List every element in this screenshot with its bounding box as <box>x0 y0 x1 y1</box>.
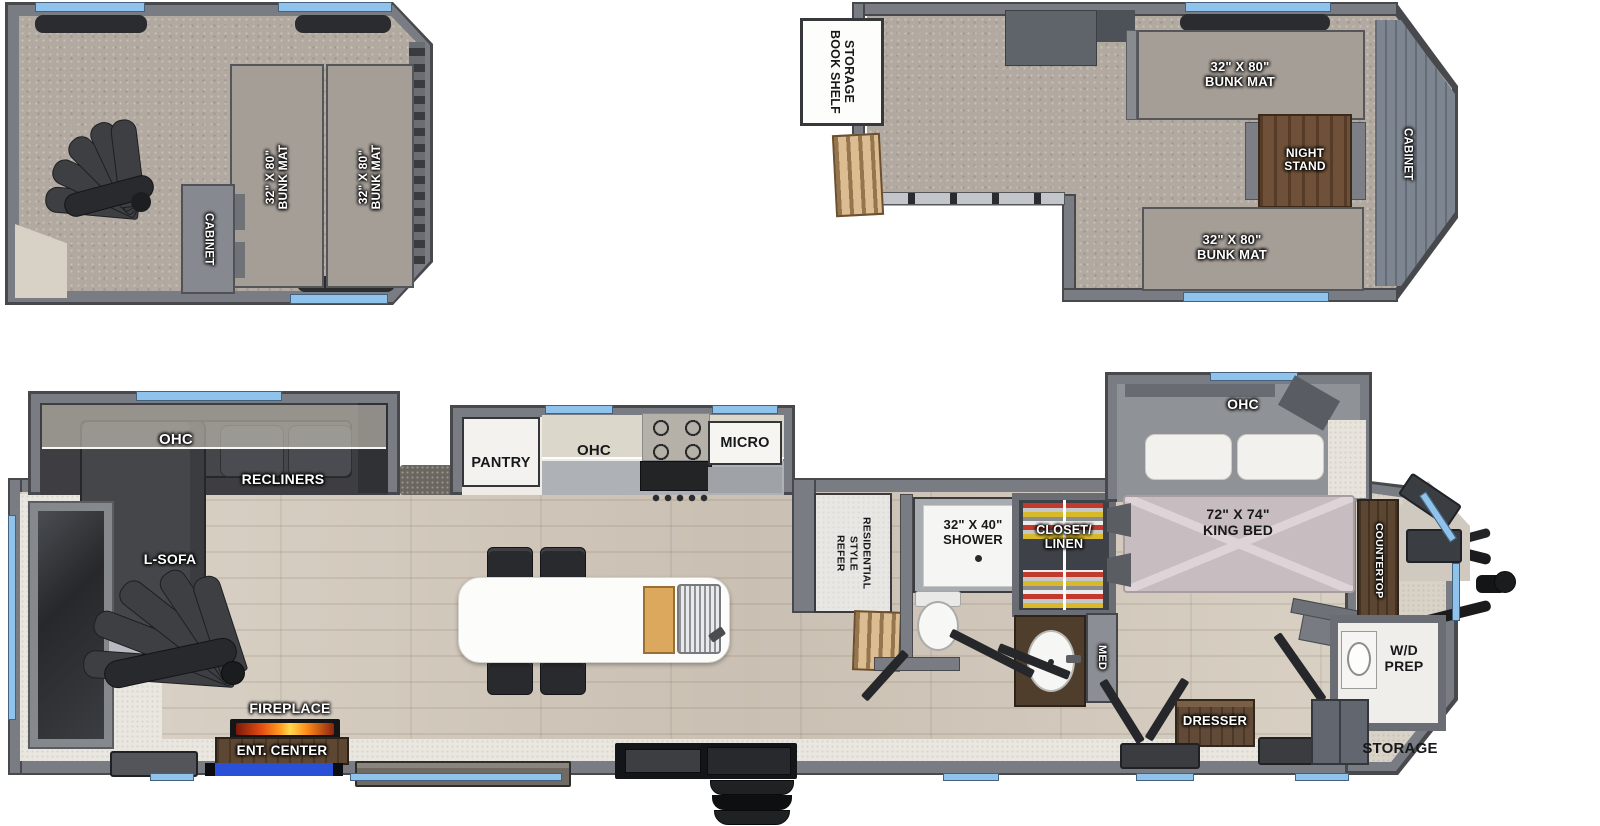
cabinet-step <box>235 194 245 230</box>
loft-right-railing <box>865 192 1065 205</box>
entry-door <box>615 743 797 779</box>
loft-right-window-top <box>1185 2 1331 12</box>
window-bottom <box>1136 773 1194 781</box>
loft-left-window-top2 <box>278 2 392 12</box>
ent-center-mat <box>205 763 343 776</box>
toilet <box>911 591 965 653</box>
bunk-bolster <box>295 15 391 33</box>
vanity-faucet <box>1066 655 1081 663</box>
tv-wall <box>28 501 114 749</box>
storage-label: STORAGE <box>1344 739 1456 759</box>
ent-center-label: ENT. CENTER <box>215 741 349 761</box>
main-floor: OHC RECLINERS L-SOFA PANTRY OHC MICRO <box>8 363 1508 826</box>
refer-label: RESIDENTIAL STYLE REFER <box>818 499 888 607</box>
stair-shelf <box>108 633 186 657</box>
loft-right-wall-mid <box>1062 194 1076 302</box>
loft-right: BOOK SHELF STORAGE 32" X 80" BUNK MAT NI… <box>790 2 1460 302</box>
window-bottom <box>1295 773 1349 781</box>
cutting-board <box>643 586 675 654</box>
wd-prep-label: W/D PREP <box>1370 637 1438 681</box>
loft-ladder <box>832 133 884 217</box>
closet-linen <box>1012 493 1116 617</box>
pantry-label: PANTRY <box>462 455 540 471</box>
window-bottom <box>350 773 562 781</box>
living-ohc-label: OHC <box>136 431 216 449</box>
pebble-rug <box>400 465 456 495</box>
cabinet-label: CABINET <box>185 190 231 288</box>
fireplace-flame <box>236 723 334 735</box>
closet-label: CLOSET/ LINEN <box>1020 519 1108 555</box>
fireplace-label: FIREPLACE <box>235 701 345 717</box>
shower-label: 32" X 40" SHOWER <box>923 515 1023 551</box>
bunk-mat-label: 32" X 80" BUNK MAT <box>264 117 290 237</box>
island-chair <box>540 659 586 695</box>
bedroom-ohc-label: OHC <box>1203 396 1283 413</box>
micro-label: MICRO <box>708 435 782 451</box>
bunk-mat-label: 32" X 80" BUNK MAT <box>1150 57 1330 93</box>
window-left-wall <box>8 515 16 720</box>
shower-drain <box>975 555 982 562</box>
entry-steps <box>710 780 794 826</box>
stove-grate <box>648 489 708 503</box>
l-sofa-label: L-SOFA <box>120 551 220 569</box>
loft-left-window-top1 <box>35 2 145 12</box>
bed-wedge <box>1107 553 1131 587</box>
kitchen-slide-window <box>712 405 778 414</box>
window-bottom <box>943 773 999 781</box>
cap-window-side <box>1452 563 1460 621</box>
oven <box>640 461 712 491</box>
nightstand-arm <box>1350 122 1366 200</box>
closet-rod <box>1063 500 1066 610</box>
bed-pillow <box>1237 434 1324 480</box>
window-bottom <box>150 773 194 781</box>
bedroom-slide-window <box>1210 372 1298 381</box>
micro-front <box>708 467 782 493</box>
bookshelf-label: BOOK SHELF STORAGE <box>804 22 880 122</box>
loft-left-window-bottom <box>290 294 388 304</box>
loft-right-window-bottom <box>1183 292 1329 302</box>
bed-wedge <box>1107 503 1131 537</box>
bed-pillow <box>1145 434 1232 480</box>
floorplan-canvas: 32" X 80" BUNK MAT 32" X 80" BUNK MAT CA… <box>0 0 1600 826</box>
bunk-bolster <box>35 15 147 33</box>
bench <box>1120 743 1200 769</box>
bunk-bolster <box>1180 14 1330 31</box>
bunk-headboard <box>1126 30 1137 120</box>
recliners-label: RECLINERS <box>218 471 348 488</box>
cabinet-label: CABINET <box>1390 102 1424 206</box>
island-sink <box>677 584 721 654</box>
loft-right-cabinet-topleft <box>1005 10 1097 66</box>
bunk-mat-label: 32" X 80" BUNK MAT <box>357 117 383 237</box>
kitchen-island <box>458 577 730 663</box>
loft-left: 32" X 80" BUNK MAT 32" X 80" BUNK MAT CA… <box>5 2 433 305</box>
hitch-coupler-knob <box>1494 571 1516 593</box>
dresser-label: DRESSER <box>1175 711 1255 731</box>
wall-refer <box>792 478 816 613</box>
kitchen-ohc-label: OHC <box>558 443 630 459</box>
cabinet-step <box>235 242 245 278</box>
pantry-box <box>462 417 540 487</box>
kitchen-slide-window <box>545 405 613 414</box>
king-bed-label: 72" X 74" KING BED <box>1148 505 1328 541</box>
bedroom-slide <box>1105 372 1372 502</box>
fireplace <box>230 719 340 739</box>
countertop-label: COUNTERTOP <box>1360 505 1396 617</box>
cooktop <box>642 413 710 461</box>
island-chair <box>487 659 533 695</box>
living-slide-window <box>136 391 282 401</box>
nightstand-label: NIGHT STAND <box>1258 142 1352 178</box>
bunk-mat-label: 32" X 80" BUNK MAT <box>1142 230 1322 266</box>
bedside-strip <box>1328 420 1366 498</box>
